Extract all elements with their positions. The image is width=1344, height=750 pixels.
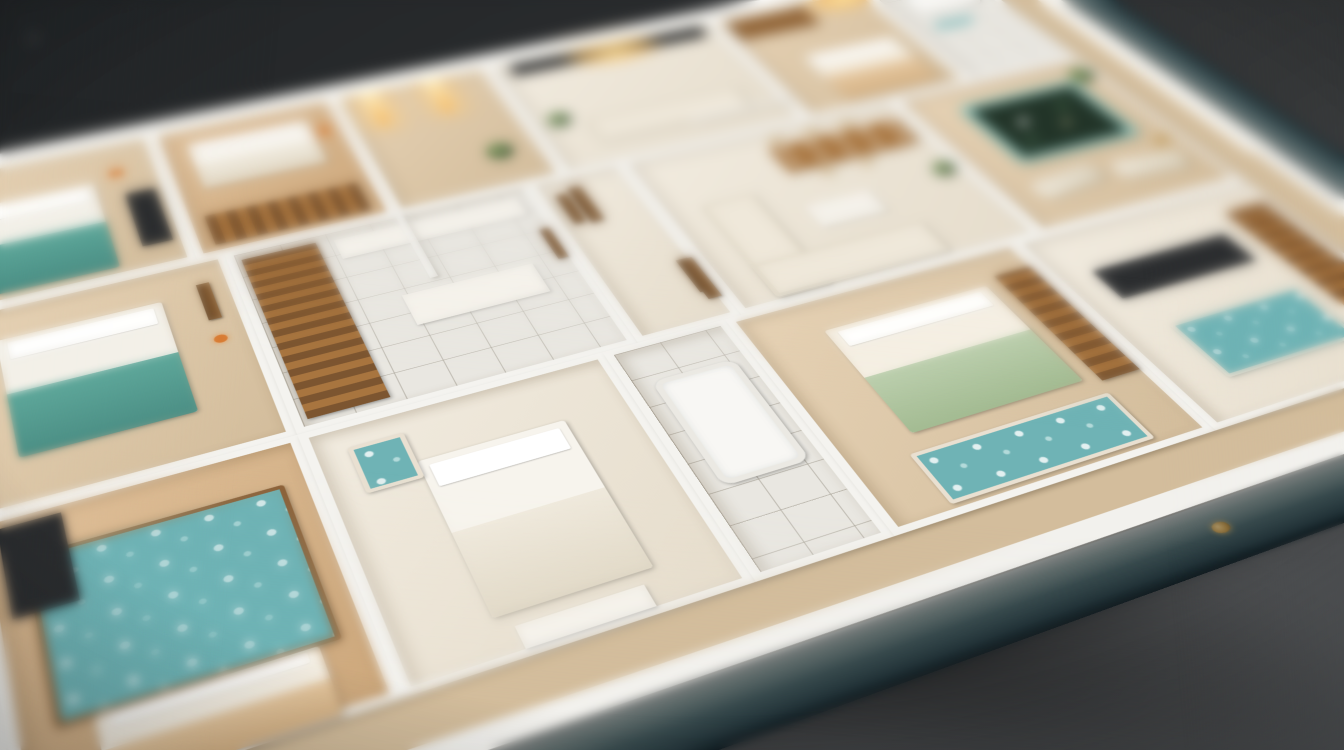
gold-cushion (1152, 136, 1172, 145)
wood-door (196, 282, 222, 320)
bed (802, 37, 942, 100)
sofa (585, 87, 754, 142)
plant (482, 141, 517, 160)
dresser (125, 188, 173, 247)
chair (803, 128, 820, 137)
bathtub (899, 0, 984, 16)
small-rug (347, 433, 425, 494)
orange-accent (317, 126, 331, 136)
plant (928, 160, 960, 176)
bed (186, 120, 328, 189)
island (402, 263, 551, 325)
planter-pond (956, 80, 1142, 164)
chair (819, 166, 837, 175)
coffee-table (804, 190, 889, 227)
bokeh-speck (28, 34, 38, 42)
chair (767, 136, 784, 145)
chair (857, 157, 875, 166)
desk (1092, 234, 1256, 298)
dresser (0, 512, 80, 619)
plant (544, 112, 575, 128)
lit-doorway (420, 76, 460, 113)
gold-emblem (1208, 520, 1234, 535)
orange-lamp (213, 333, 229, 344)
photo-scene (0, 0, 1344, 750)
towel (933, 16, 976, 29)
lit-doorway (357, 89, 396, 127)
lounger (1027, 163, 1109, 200)
orange-lamp (108, 168, 124, 177)
bed (0, 302, 198, 458)
teal-rug (1168, 286, 1344, 377)
chair (838, 119, 855, 127)
lounger (1107, 150, 1193, 178)
bed (417, 420, 653, 618)
